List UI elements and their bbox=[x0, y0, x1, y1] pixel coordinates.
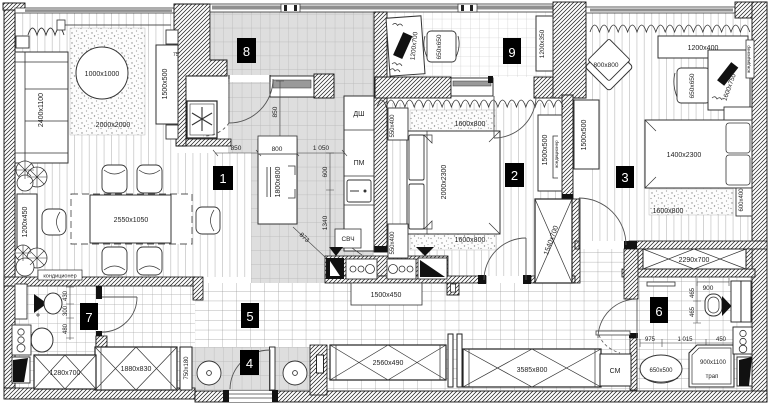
svg-text:450: 450 bbox=[716, 337, 727, 343]
svg-text:550x400: 550x400 bbox=[390, 231, 396, 255]
svg-text:5: 5 bbox=[246, 309, 253, 324]
svg-text:1600x800: 1600x800 bbox=[653, 208, 684, 215]
svg-text:975: 975 bbox=[645, 337, 656, 343]
svg-text:465: 465 bbox=[690, 306, 696, 317]
svg-text:1200x450: 1200x450 bbox=[22, 207, 29, 238]
svg-text:3585x800: 3585x800 bbox=[517, 367, 548, 374]
svg-text:650x500: 650x500 bbox=[649, 368, 673, 374]
svg-text:2560x490: 2560x490 bbox=[373, 360, 404, 367]
svg-text:800: 800 bbox=[272, 146, 283, 153]
svg-text:1500x500: 1500x500 bbox=[542, 135, 549, 166]
svg-text:1600x800: 1600x800 bbox=[455, 237, 486, 244]
svg-text:кондиционер: кондиционер bbox=[43, 274, 76, 280]
svg-text:850: 850 bbox=[231, 145, 242, 152]
svg-text:1880x830: 1880x830 bbox=[121, 366, 152, 373]
svg-text:кондиционер: кондиционер bbox=[746, 45, 751, 73]
svg-text:75': 75' bbox=[173, 52, 180, 58]
svg-text:600: 600 bbox=[322, 166, 329, 177]
svg-text:СВЧ: СВЧ bbox=[341, 236, 354, 243]
svg-text:1 015: 1 015 bbox=[677, 337, 693, 343]
svg-text:8: 8 bbox=[243, 44, 250, 59]
svg-text:850: 850 bbox=[272, 106, 279, 117]
svg-text:1400x2300: 1400x2300 bbox=[667, 152, 702, 159]
svg-text:900x1100: 900x1100 bbox=[700, 360, 727, 366]
svg-text:2550x1050: 2550x1050 bbox=[114, 217, 149, 224]
svg-text:1800x800: 1800x800 bbox=[275, 167, 282, 198]
svg-text:430: 430 bbox=[63, 290, 69, 301]
svg-text:650x650: 650x650 bbox=[436, 34, 443, 59]
svg-text:9: 9 bbox=[508, 45, 515, 60]
svg-text:900: 900 bbox=[703, 285, 714, 292]
svg-text:1280x700: 1280x700 bbox=[50, 370, 81, 377]
svg-text:480: 480 bbox=[63, 323, 69, 334]
svg-text:2000x2300: 2000x2300 bbox=[441, 165, 448, 200]
svg-text:3: 3 bbox=[621, 170, 628, 185]
svg-text:465: 465 bbox=[690, 287, 696, 298]
svg-text:трап: трап bbox=[706, 374, 719, 380]
svg-text:7: 7 bbox=[85, 310, 92, 325]
svg-text:1500x500: 1500x500 bbox=[581, 120, 588, 151]
svg-text:2290x700: 2290x700 bbox=[679, 257, 710, 264]
svg-text:1500x500: 1500x500 bbox=[162, 69, 169, 100]
svg-text:кондиционер: кондиционер bbox=[554, 140, 559, 168]
svg-text:ПМ: ПМ bbox=[354, 160, 365, 167]
svg-text:1000x1000: 1000x1000 bbox=[85, 71, 120, 78]
svg-text:800x800: 800x800 bbox=[594, 62, 619, 69]
svg-text:2000x2000: 2000x2000 bbox=[96, 122, 131, 129]
svg-text:1500x450: 1500x450 bbox=[371, 292, 402, 299]
svg-text:2400x1100: 2400x1100 bbox=[38, 93, 45, 127]
svg-text:1: 1 bbox=[219, 171, 226, 186]
svg-text:ДШ: ДШ bbox=[353, 111, 364, 118]
svg-text:600x400: 600x400 bbox=[739, 188, 745, 212]
svg-text:6: 6 bbox=[655, 304, 662, 319]
svg-text:СМ: СМ bbox=[610, 368, 621, 375]
svg-text:1600x800: 1600x800 bbox=[455, 121, 486, 128]
svg-text:300: 300 bbox=[63, 305, 69, 316]
svg-text:2: 2 bbox=[511, 168, 518, 183]
svg-text:750x180: 750x180 bbox=[184, 356, 190, 380]
svg-text:4: 4 bbox=[246, 356, 253, 371]
svg-text:1200x350: 1200x350 bbox=[539, 29, 546, 58]
svg-text:550x400: 550x400 bbox=[390, 114, 396, 138]
svg-text:1 050: 1 050 bbox=[313, 145, 330, 152]
svg-text:1340: 1340 bbox=[322, 215, 329, 230]
svg-text:650x650: 650x650 bbox=[689, 73, 696, 98]
